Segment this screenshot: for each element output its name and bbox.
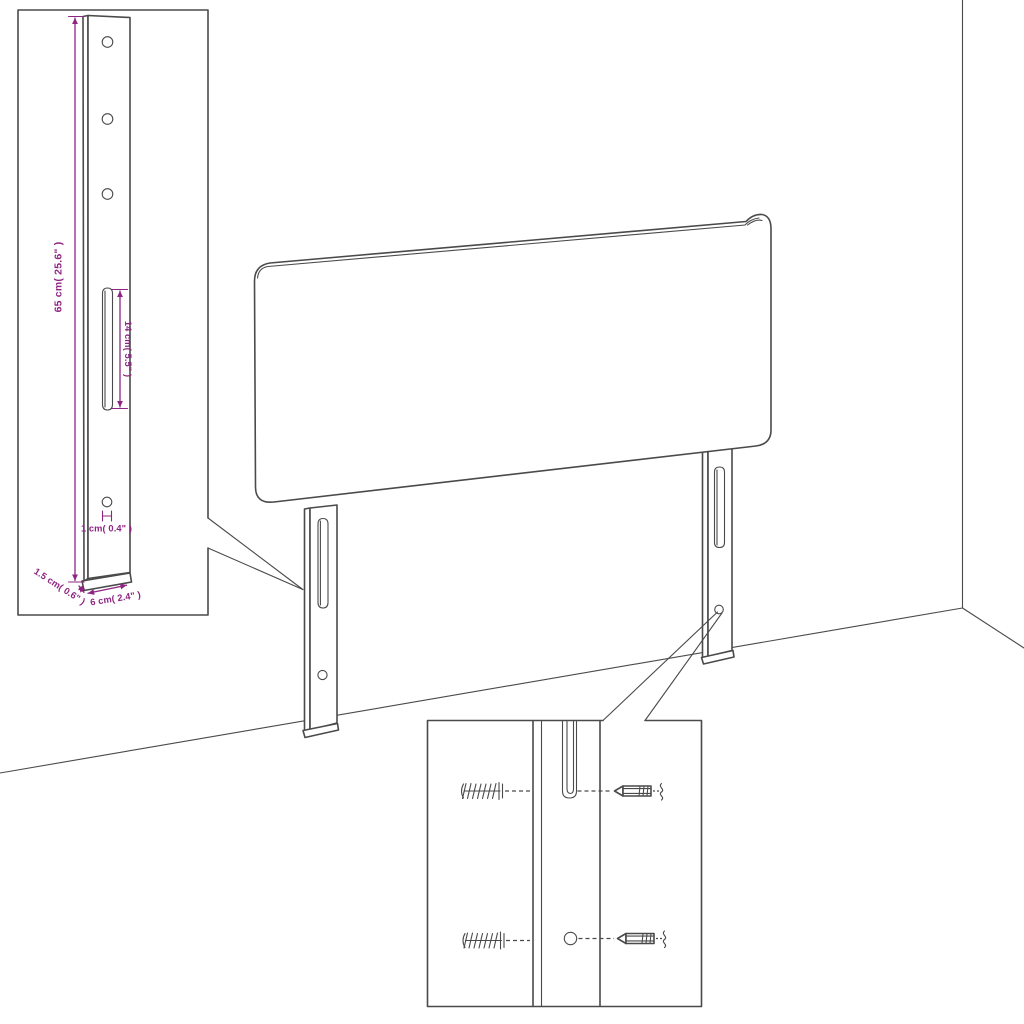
inset-background [428,721,702,1007]
right-leg-side-face [703,450,709,658]
mounting-detail-inset [428,721,702,1007]
hole-dimension-label: 1 cm( 0.4" ) [81,524,132,534]
diagram-canvas: 65 cm( 25.6" ) 14 cm( 5.5" ) 1 cm( 0.4" … [0,0,1024,1024]
leg-detail-inset: 65 cm( 25.6" ) 14 cm( 5.5" ) 1 cm( 0.4" … [18,10,208,615]
right-leg [702,448,735,664]
slot-dimension-label: 14 cm( 5.5" ) [123,321,133,377]
inset-leg [82,16,132,591]
panel-outline [255,214,772,502]
left-leg-side-face [305,508,311,731]
floor-line-right [963,608,1024,648]
left-leg-front-face [310,505,337,730]
headboard-dimension-diagram: 65 cm( 25.6" ) 14 cm( 5.5" ) 1 cm( 0.4" … [0,0,1024,1024]
height-dimension-label: 65 cm( 25.6" ) [53,242,65,313]
callout-line [645,613,722,721]
callout-left-leg [208,518,303,590]
right-leg-front-face [708,448,732,657]
headboard-panel [255,214,772,502]
left-leg [303,505,339,738]
inset-leg-front-face [88,16,130,579]
